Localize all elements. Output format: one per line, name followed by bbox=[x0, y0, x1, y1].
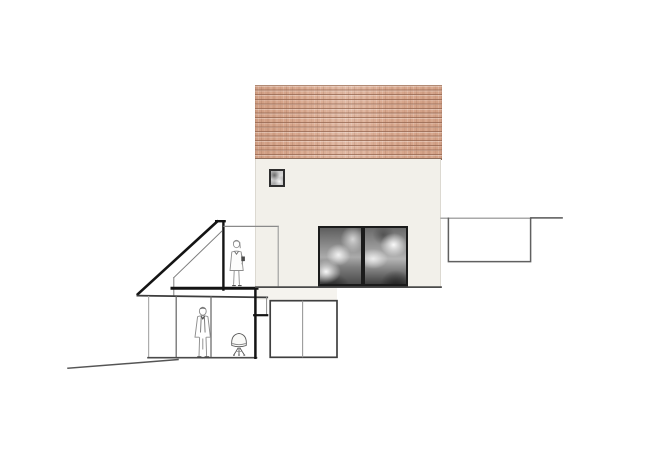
sunken-lightwell bbox=[448, 218, 530, 261]
figure-man bbox=[195, 307, 210, 357]
man-legs bbox=[199, 337, 207, 356]
annex-upper-section bbox=[138, 221, 441, 296]
linework-overlay bbox=[0, 0, 650, 449]
lower-ceiling-line bbox=[137, 296, 267, 298]
woman-handbag bbox=[241, 257, 245, 262]
chair bbox=[232, 333, 247, 355]
outbuilding-elevation bbox=[270, 301, 337, 358]
figure-woman bbox=[230, 240, 245, 285]
outbuilding-body bbox=[270, 301, 337, 358]
woman-legs bbox=[234, 271, 240, 285]
annex-roof-slope-cut bbox=[138, 222, 217, 295]
architectural-drawing-canvas bbox=[0, 0, 650, 449]
lower-level-section bbox=[137, 289, 267, 358]
ground-line-left bbox=[68, 360, 178, 369]
